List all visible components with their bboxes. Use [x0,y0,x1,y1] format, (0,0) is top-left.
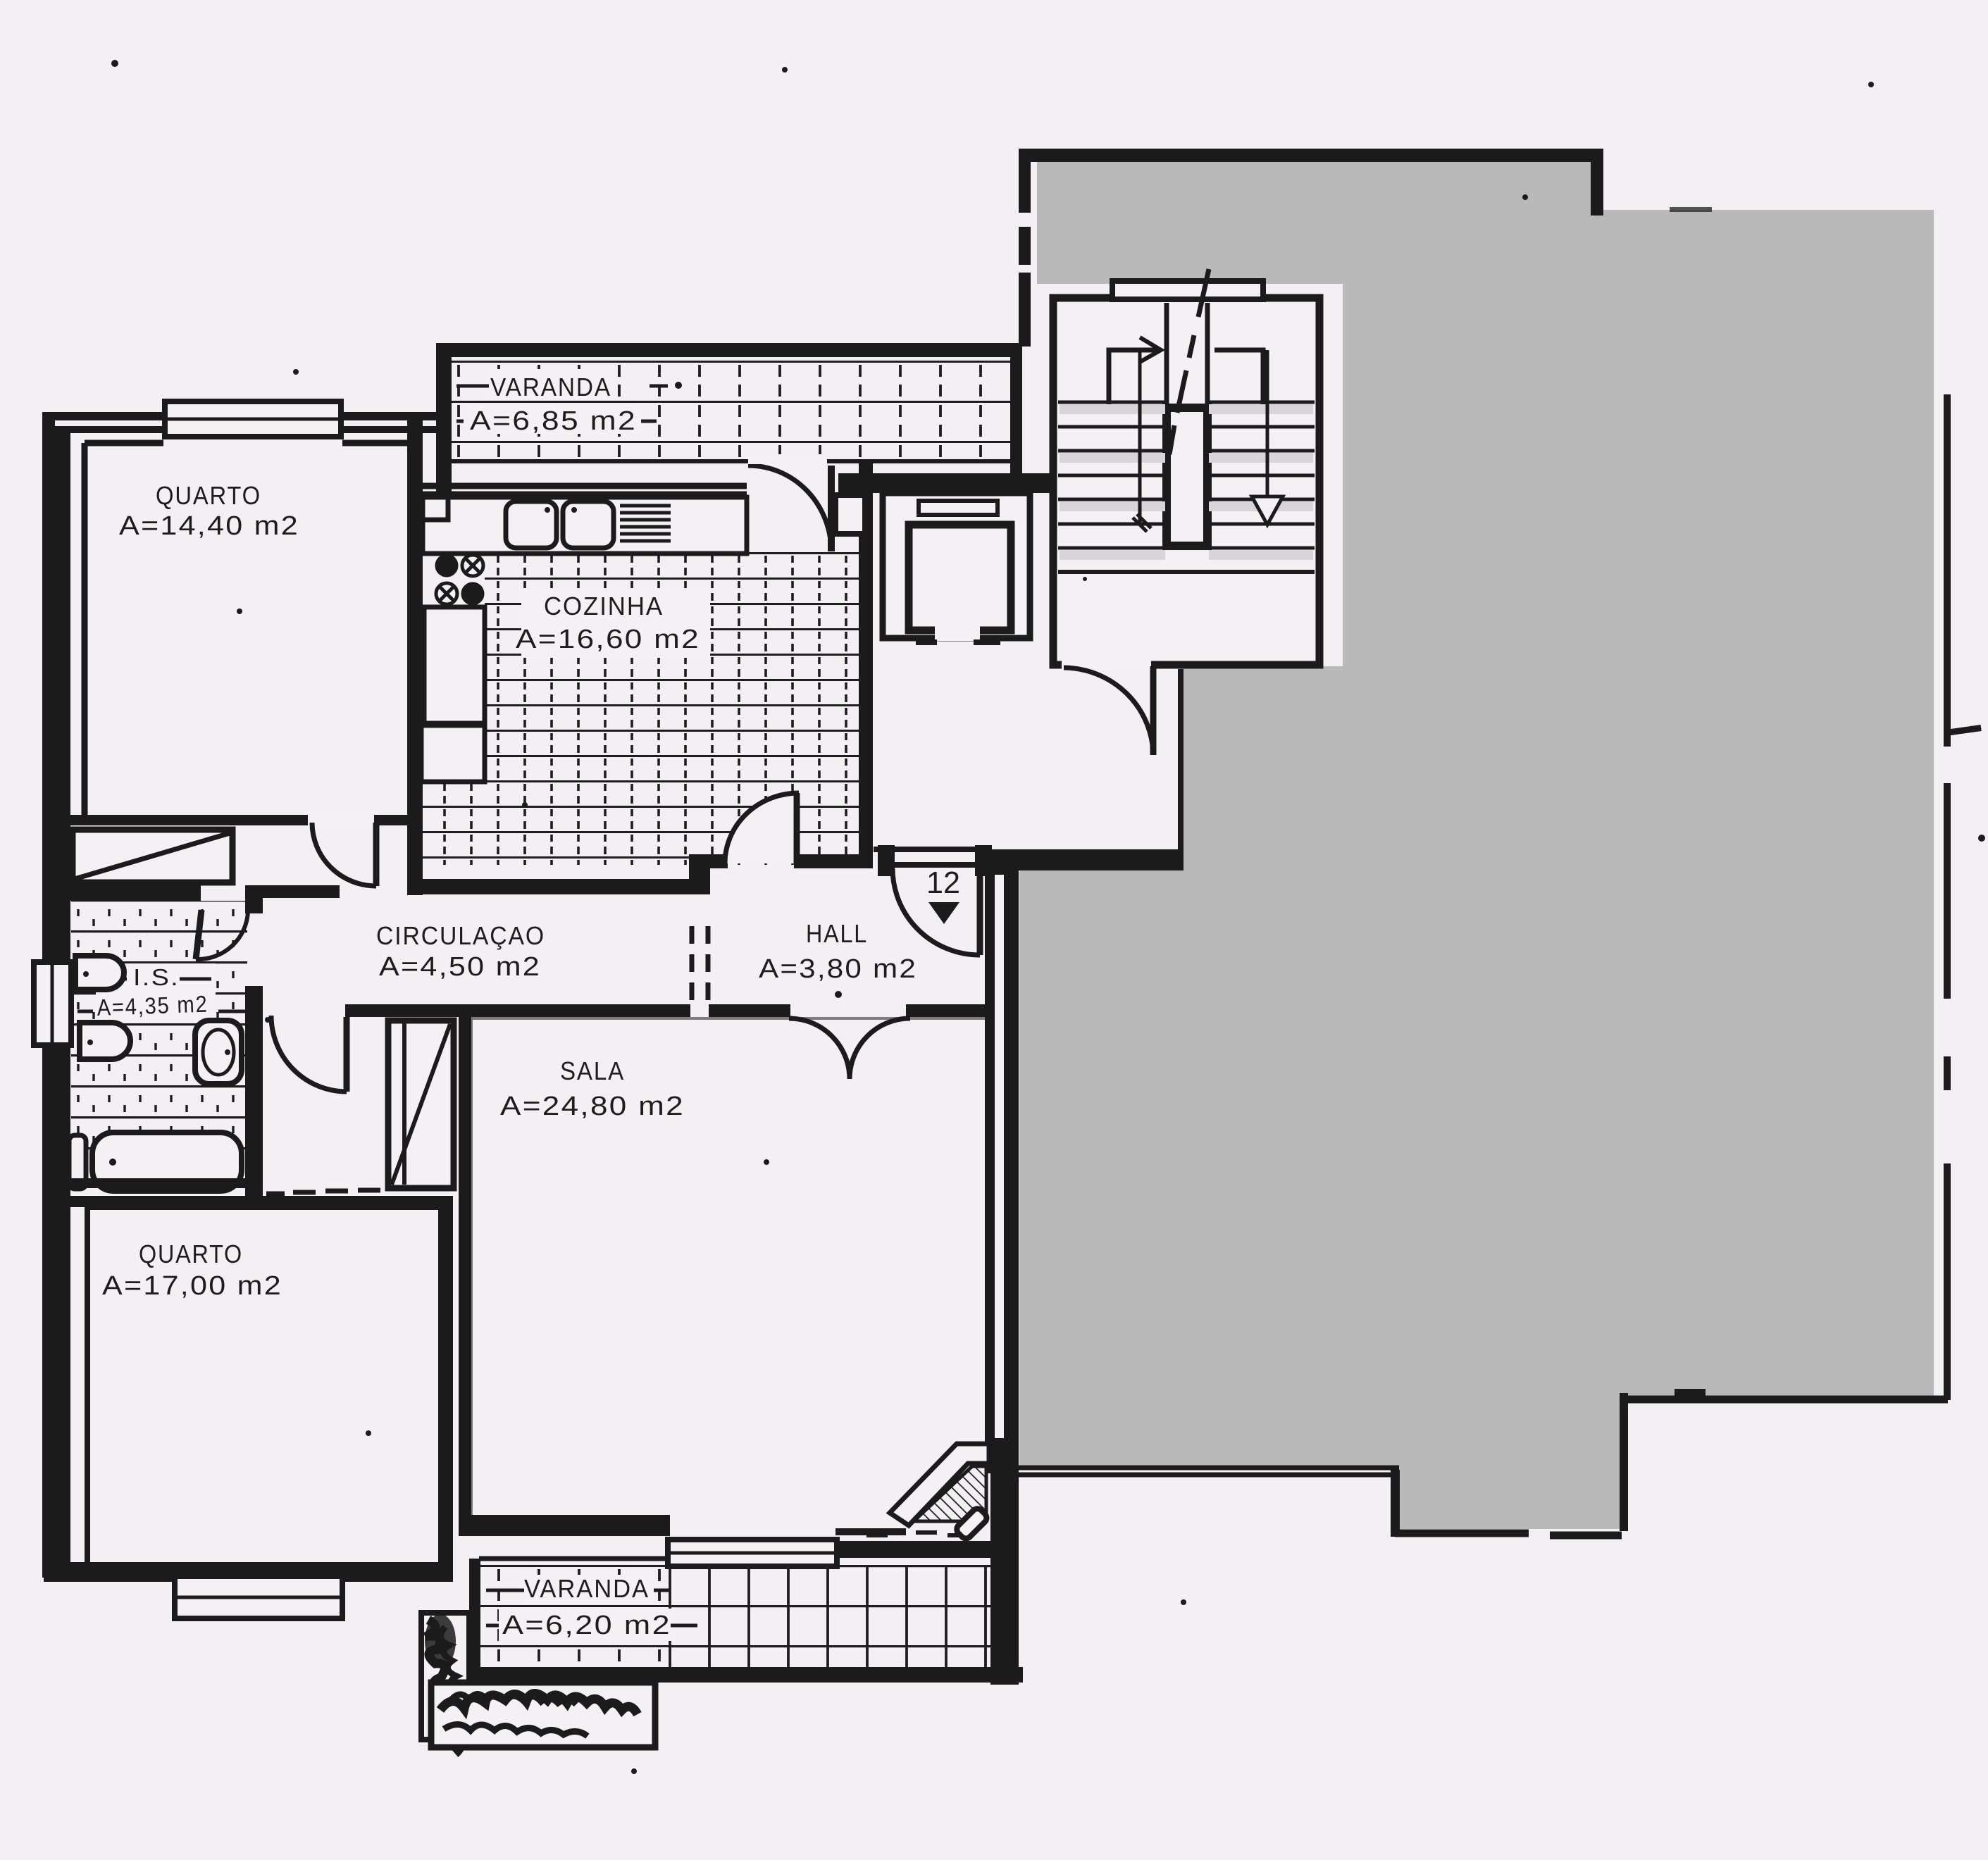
svg-text:A=6,20 m2: A=6,20 m2 [502,1611,671,1640]
svg-text:QUARTO: QUARTO [156,481,261,510]
svg-text:VARANDA: VARANDA [524,1574,650,1603]
svg-text:A=16,60 m2: A=16,60 m2 [516,625,700,654]
svg-text:HALL: HALL [806,919,868,948]
svg-text:COZINHA: COZINHA [544,592,664,620]
svg-text:VARANDA: VARANDA [490,373,611,401]
svg-text:A=24,80 m2: A=24,80 m2 [500,1092,685,1121]
svg-text:QUARTO: QUARTO [139,1240,243,1268]
svg-text:A=6,85 m2: A=6,85 m2 [470,406,637,436]
svg-text:SALA: SALA [560,1056,625,1085]
svg-text:A=17,00 m2: A=17,00 m2 [102,1271,282,1301]
svg-text:A=3,80 m2: A=3,80 m2 [759,954,917,984]
svg-text:A=4,50 m2: A=4,50 m2 [379,952,541,982]
svg-text:I.S.: I.S. [133,964,180,990]
svg-text:12: 12 [926,866,960,900]
svg-text:A=14,40 m2: A=14,40 m2 [119,511,299,541]
svg-text:CIRCULAÇAO: CIRCULAÇAO [376,921,545,950]
svg-text:A=4,35 m2: A=4,35 m2 [97,991,209,1020]
